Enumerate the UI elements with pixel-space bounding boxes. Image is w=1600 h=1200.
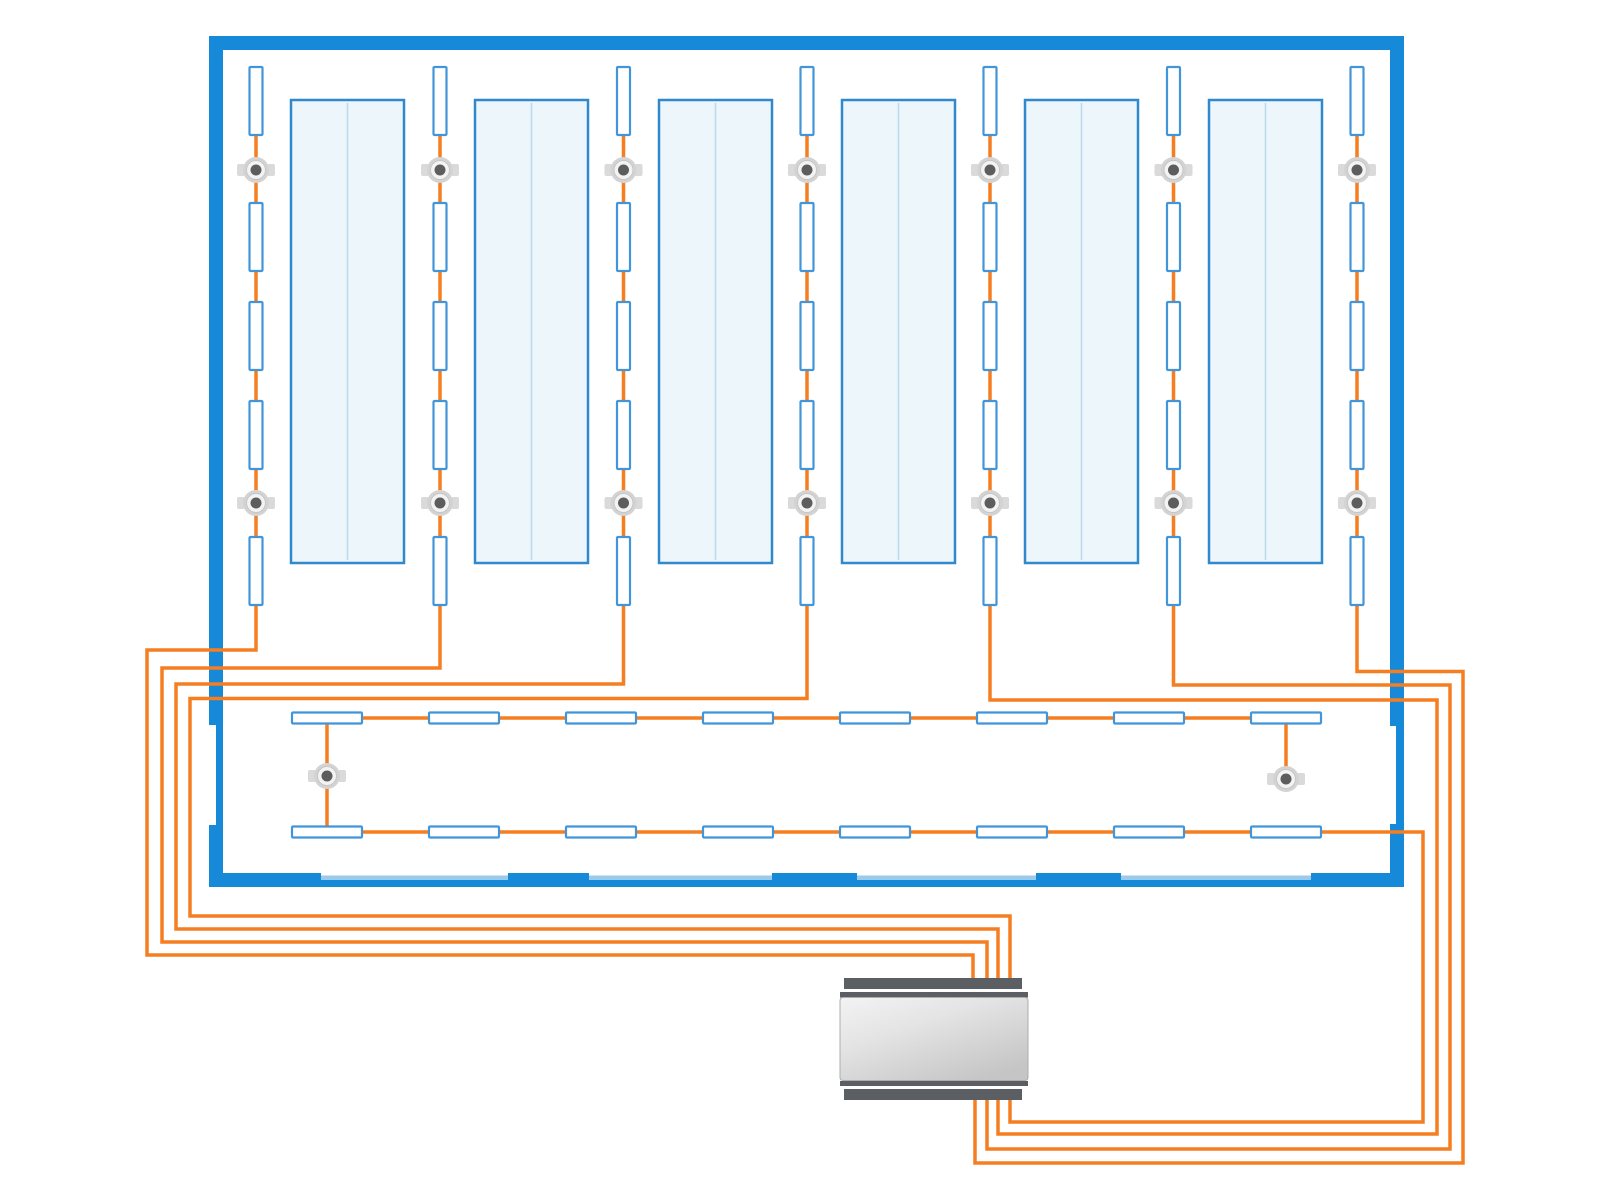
occupancy-sensor-lens xyxy=(251,498,262,509)
occupancy-sensor-lens xyxy=(985,165,996,176)
light-fixture-vertical xyxy=(984,401,997,469)
light-fixture-vertical xyxy=(1167,401,1180,469)
light-fixture-vertical xyxy=(250,401,263,469)
light-fixture-vertical xyxy=(617,67,630,135)
light-fixture-horizontal xyxy=(1251,713,1321,724)
light-fixture-horizontal xyxy=(566,827,636,838)
light-fixture-vertical xyxy=(984,203,997,271)
wall-pier-block xyxy=(772,873,857,887)
controller-terminal-bar xyxy=(844,1089,1022,1100)
light-fixture-horizontal xyxy=(1114,713,1184,724)
wall-segment xyxy=(209,36,223,725)
light-fixture-vertical xyxy=(250,203,263,271)
light-fixture-horizontal xyxy=(703,827,773,838)
wall-segment xyxy=(209,36,1404,50)
occupancy-sensor-lens xyxy=(1352,165,1363,176)
light-fixture-vertical xyxy=(801,302,814,370)
occupancy-sensor-lens xyxy=(618,165,629,176)
controller-end-plate xyxy=(840,992,1028,998)
occupancy-sensor-lens xyxy=(985,498,996,509)
wall-pier-block xyxy=(508,873,589,887)
light-fixture-vertical xyxy=(984,537,997,605)
occupancy-sensor-lens xyxy=(251,165,262,176)
occupancy-sensor-lens xyxy=(1168,498,1179,509)
light-fixture-vertical xyxy=(1351,302,1364,370)
light-fixture-vertical xyxy=(434,203,447,271)
light-fixture-horizontal xyxy=(977,713,1047,724)
occupancy-sensor-lens xyxy=(1168,165,1179,176)
wall-segment xyxy=(1396,726,1404,824)
occupancy-sensor-lens xyxy=(435,165,446,176)
light-fixture-vertical xyxy=(617,203,630,271)
occupancy-sensor-lens xyxy=(618,498,629,509)
light-fixture-horizontal xyxy=(977,827,1047,838)
light-fixture-vertical xyxy=(434,537,447,605)
light-fixture-horizontal xyxy=(429,713,499,724)
light-fixture-vertical xyxy=(434,302,447,370)
wall-pier-block xyxy=(1036,873,1121,887)
lighting-wiring-floor-plan xyxy=(0,0,1600,1200)
light-fixture-vertical xyxy=(1351,537,1364,605)
wall-segment xyxy=(1390,36,1404,726)
light-fixture-vertical xyxy=(801,67,814,135)
light-fixture-vertical xyxy=(250,67,263,135)
wall-pier-block xyxy=(1311,873,1404,887)
light-fixture-vertical xyxy=(617,537,630,605)
light-fixture-vertical xyxy=(434,67,447,135)
light-fixture-vertical xyxy=(801,401,814,469)
light-fixture-vertical xyxy=(1351,401,1364,469)
light-fixture-vertical xyxy=(1351,203,1364,271)
light-fixture-horizontal xyxy=(292,713,362,724)
light-fixture-horizontal xyxy=(292,827,362,838)
light-fixture-horizontal xyxy=(1114,827,1184,838)
light-fixture-horizontal xyxy=(1251,827,1321,838)
light-fixture-horizontal xyxy=(840,713,910,724)
light-fixture-vertical xyxy=(434,401,447,469)
floor-plan-stage xyxy=(0,0,1600,1200)
light-fixture-vertical xyxy=(1167,302,1180,370)
occupancy-sensor-lens xyxy=(1281,774,1292,785)
light-fixture-vertical xyxy=(617,401,630,469)
light-fixture-vertical xyxy=(801,203,814,271)
light-fixture-vertical xyxy=(250,302,263,370)
light-fixture-horizontal xyxy=(703,713,773,724)
wall-segment xyxy=(216,725,223,825)
light-fixture-vertical xyxy=(617,302,630,370)
occupancy-sensor-lens xyxy=(435,498,446,509)
occupancy-sensor-lens xyxy=(802,165,813,176)
light-fixture-horizontal xyxy=(566,713,636,724)
occupancy-sensor-lens xyxy=(322,771,333,782)
light-fixture-vertical xyxy=(1351,67,1364,135)
controller-body xyxy=(840,998,1028,1081)
wall-segment xyxy=(209,825,223,887)
light-fixture-vertical xyxy=(801,537,814,605)
light-fixture-horizontal xyxy=(429,827,499,838)
controller-end-plate xyxy=(840,1081,1028,1086)
occupancy-sensor-lens xyxy=(1352,498,1363,509)
light-fixture-vertical xyxy=(1167,537,1180,605)
controller-terminal-bar xyxy=(844,978,1022,989)
occupancy-sensor-lens xyxy=(802,498,813,509)
controller-unit xyxy=(840,978,1028,1100)
light-fixture-vertical xyxy=(250,537,263,605)
light-fixture-vertical xyxy=(984,67,997,135)
wall-pier-block xyxy=(223,873,321,887)
light-fixture-horizontal xyxy=(840,827,910,838)
light-fixture-vertical xyxy=(1167,67,1180,135)
light-fixture-vertical xyxy=(984,302,997,370)
light-fixture-vertical xyxy=(1167,203,1180,271)
